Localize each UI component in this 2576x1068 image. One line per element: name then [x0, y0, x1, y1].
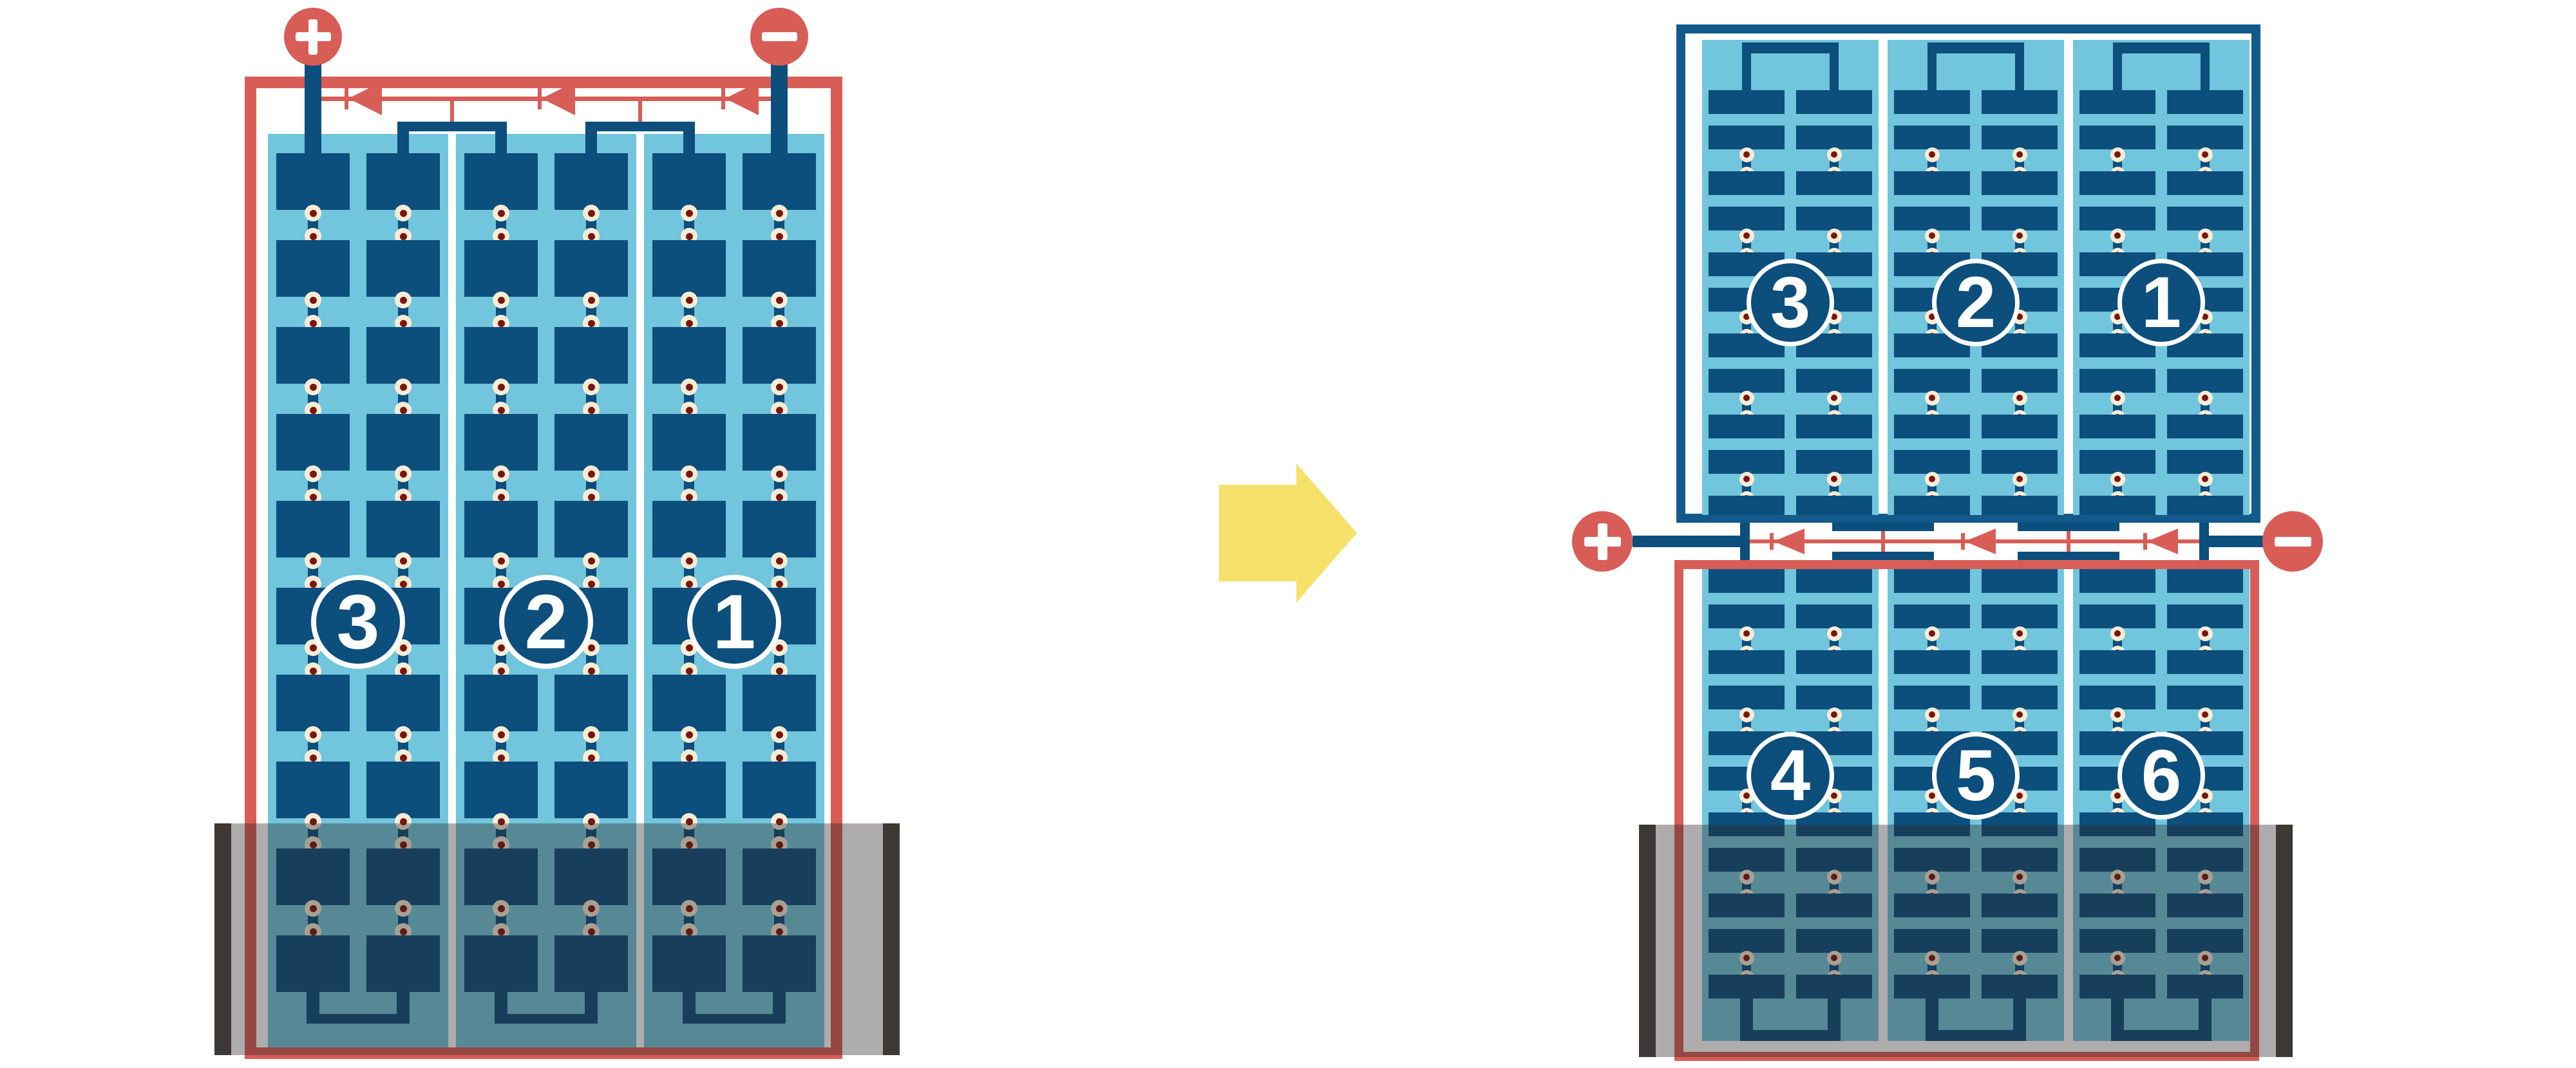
junction-bus-bar: [2199, 523, 2209, 560]
string-number-badge: 4: [1747, 732, 1834, 820]
solar-cell: [1982, 369, 2058, 393]
solar-cell: [2167, 686, 2243, 709]
solder-joint-icon: [2012, 472, 2027, 487]
solar-cell: [2167, 415, 2243, 438]
solar-cell: [1709, 415, 1785, 438]
solar-cell: [1709, 450, 1785, 474]
solder-joint-core: [1929, 711, 1935, 718]
solar-cell: [2079, 650, 2155, 674]
solder-joint-core: [2202, 151, 2208, 158]
solder-joint-icon: [2012, 707, 2027, 722]
solder-joint-core: [1831, 711, 1837, 718]
solar-cell: [2079, 171, 2155, 195]
solar-cell: [1982, 415, 2058, 438]
solder-joint-icon: [2110, 391, 2125, 406]
solar-cell: [1982, 90, 2058, 114]
solar-cell: [2167, 171, 2243, 195]
solder-joint-icon: [2110, 229, 2125, 243]
solar-cell: [1709, 569, 1785, 593]
shade-edge-bar: [2276, 825, 2293, 1057]
solder-joint-icon: [1925, 707, 1940, 722]
solar-cell: [1709, 90, 1785, 114]
minus-icon: [2275, 537, 2311, 547]
solder-joint-core: [1743, 151, 1750, 158]
solder-joint-core: [2114, 792, 2121, 799]
solder-joint-core: [2016, 630, 2023, 637]
positive-terminal: [1572, 511, 1633, 572]
solar-cell: [1796, 496, 1872, 515]
solar-cell: [2167, 496, 2243, 515]
string-number-badge: 5: [1932, 732, 2020, 820]
solar-cell: [2167, 207, 2243, 230]
solder-joint-icon: [2198, 472, 2213, 487]
solder-joint-core: [2016, 395, 2023, 401]
solder-joint-icon: [2110, 626, 2125, 641]
solder-joint-icon: [2110, 707, 2125, 722]
solder-joint-core: [1929, 476, 1935, 482]
shade-overlay: [1639, 825, 2293, 1057]
solder-joint-core: [1743, 792, 1750, 799]
solar-cell: [1894, 171, 1970, 195]
string-number-badge: 3: [1747, 259, 1834, 346]
solar-cell: [1982, 207, 2058, 230]
terminal-wire: [2209, 536, 2264, 547]
solar-cell: [1709, 126, 1785, 149]
solder-joint-core: [1831, 476, 1837, 482]
solar-cell: [1982, 126, 2058, 149]
solder-joint-core: [2114, 711, 2121, 718]
solder-joint-core: [1743, 630, 1750, 637]
string-jumper-leg: [2015, 53, 2024, 91]
string-jumper-top: [1742, 42, 1839, 53]
terminal-wire: [1633, 536, 1740, 547]
solar-cell: [1982, 171, 2058, 195]
solar-cell: [1796, 90, 1872, 114]
diode-tap-tick: [2067, 531, 2070, 552]
solar-cell: [2079, 369, 2155, 393]
solder-joint-icon: [1739, 391, 1754, 406]
solder-joint-core: [1743, 476, 1750, 482]
solder-joint-icon: [1925, 626, 1940, 641]
bypass-diode-icon: [2147, 529, 2178, 554]
solder-joint-core: [1831, 232, 1837, 239]
negative-terminal: [2262, 511, 2323, 572]
solder-joint-icon: [2110, 472, 2125, 487]
diode-tap-tick: [1881, 531, 1885, 552]
solar-cell: [2079, 604, 2155, 628]
solder-joint-core: [1743, 232, 1750, 239]
solder-joint-icon: [1827, 391, 1842, 406]
string-jumper-leg: [1927, 53, 1937, 91]
string-jumper-leg: [2113, 53, 2122, 91]
solder-joint-icon: [1827, 472, 1842, 487]
string-number-badge: 1: [2117, 259, 2205, 346]
string-jumper-leg: [2201, 53, 2210, 91]
solar-cell: [1796, 126, 1872, 149]
solar-cell: [2079, 415, 2155, 438]
string-number-badge: 6: [2117, 732, 2205, 820]
solar-cell: [1709, 171, 1785, 195]
solder-joint-core: [2114, 395, 2121, 401]
solder-joint-core: [1831, 792, 1837, 799]
solar-cell: [2167, 126, 2243, 149]
solder-joint-icon: [1827, 626, 1842, 641]
solar-cell: [1894, 686, 1970, 709]
solder-joint-icon: [1739, 229, 1754, 243]
solar-cell: [1709, 650, 1785, 674]
solar-cell: [1796, 415, 1872, 438]
junction-tab-lower: [1832, 552, 1934, 560]
bypass-diode-icon: [1965, 529, 1996, 554]
solder-joint-core: [1929, 630, 1935, 637]
solar-cell: [2079, 450, 2155, 474]
solar-cell: [2167, 369, 2243, 393]
solar-cell: [1894, 569, 1970, 593]
solder-joint-core: [1743, 711, 1750, 718]
bypass-diode-icon: [1774, 529, 1804, 554]
solder-joint-core: [1831, 395, 1837, 401]
solar-cell: [1796, 450, 1872, 474]
solar-cell: [1894, 604, 1970, 628]
solder-joint-core: [1929, 792, 1935, 799]
solar-cell: [1894, 369, 1970, 393]
solar-cell: [1709, 496, 1785, 515]
solar-cell: [2079, 126, 2155, 149]
solder-joint-core: [2016, 232, 2023, 239]
solar-cell: [2167, 569, 2243, 593]
solder-joint-icon: [2198, 626, 2213, 641]
solar-cell: [1796, 650, 1872, 674]
solder-joint-core: [1929, 151, 1935, 158]
solar-cell: [1894, 496, 1970, 515]
solder-joint-icon: [2198, 229, 2213, 243]
solar-cell: [2079, 496, 2155, 515]
solder-joint-icon: [1925, 391, 1940, 406]
string-number-badge: 2: [1932, 259, 2020, 346]
solar-cell: [2167, 90, 2243, 114]
solder-joint-icon: [2110, 147, 2125, 162]
solder-joint-icon: [1827, 707, 1842, 722]
solder-joint-icon: [2198, 707, 2213, 722]
solder-joint-core: [2202, 476, 2208, 482]
solder-joint-icon: [1739, 147, 1754, 162]
solder-joint-core: [1831, 630, 1837, 637]
solder-joint-icon: [1925, 472, 1940, 487]
solar-cell: [1894, 415, 1970, 438]
string-jumper-top: [1927, 42, 2024, 53]
solar-cell: [1796, 686, 1872, 709]
solar-cell: [2079, 207, 2155, 230]
solar-cell: [2167, 650, 2243, 674]
string-jumper-leg: [1742, 53, 1751, 91]
solder-joint-core: [2114, 630, 2121, 637]
solar-cell: [2167, 450, 2243, 474]
solder-joint-core: [2114, 476, 2121, 482]
diagram-canvas: 321 321456: [0, 0, 2576, 1068]
solar-cell: [1982, 450, 2058, 474]
solar-cell: [1709, 604, 1785, 628]
solar-cell: [1796, 369, 1872, 393]
solar-cell: [1709, 207, 1785, 230]
junction-tab-lower: [2018, 552, 2119, 560]
string-jumper-top: [2113, 42, 2210, 53]
solder-joint-core: [2016, 792, 2023, 799]
solar-cell: [1709, 686, 1785, 709]
solar-cell: [2079, 686, 2155, 709]
solar-cell: [1982, 686, 2058, 709]
solder-joint-core: [2202, 630, 2208, 637]
solar-cell: [1796, 604, 1872, 628]
solder-joint-icon: [2012, 147, 2027, 162]
solar-cell: [1982, 650, 2058, 674]
solder-joint-icon: [1925, 147, 1940, 162]
solder-joint-core: [1929, 395, 1935, 401]
solder-joint-core: [1743, 395, 1750, 401]
solar-cell: [1982, 604, 2058, 628]
solder-joint-core: [2114, 232, 2121, 239]
solder-joint-icon: [2198, 391, 2213, 406]
solder-joint-core: [2202, 232, 2208, 239]
solder-joint-core: [1831, 151, 1837, 158]
solar-cell: [2079, 569, 2155, 593]
solder-joint-core: [2016, 711, 2023, 718]
solar-cell: [1894, 450, 1970, 474]
solar-cell: [1894, 650, 1970, 674]
solar-cell: [2079, 90, 2155, 114]
plus-icon: [1598, 523, 1607, 560]
solar-cell: [1894, 90, 1970, 114]
half-cut-module-diagram: 321456: [0, 0, 2576, 1068]
solar-cell: [1796, 569, 1872, 593]
solder-joint-core: [2114, 151, 2121, 158]
solar-cell: [1894, 207, 1970, 230]
solder-joint-icon: [2012, 626, 2027, 641]
solar-cell: [1796, 171, 1872, 195]
string-jumper-leg: [1830, 53, 1839, 91]
solar-cell: [1982, 496, 2058, 515]
solder-joint-icon: [2012, 229, 2027, 243]
solder-joint-core: [1929, 232, 1935, 239]
solder-joint-core: [2016, 476, 2023, 482]
solder-joint-icon: [2198, 147, 2213, 162]
junction-tab-upper: [2018, 523, 2119, 531]
solder-joint-icon: [2012, 391, 2027, 406]
solder-joint-icon: [1739, 707, 1754, 722]
solder-joint-icon: [1925, 229, 1940, 243]
solar-cell: [1894, 126, 1970, 149]
solder-joint-icon: [1739, 626, 1754, 641]
solder-joint-core: [2016, 151, 2023, 158]
solder-joint-core: [2202, 792, 2208, 799]
solder-joint-icon: [1827, 229, 1842, 243]
junction-bus-bar: [1740, 523, 1750, 560]
solder-joint-icon: [1739, 472, 1754, 487]
solar-cell: [1709, 369, 1785, 393]
solar-cell: [2167, 604, 2243, 628]
solar-cell: [1796, 207, 1872, 230]
junction-tab-upper: [1832, 523, 1934, 531]
solder-joint-core: [2202, 395, 2208, 401]
solder-joint-icon: [1827, 147, 1842, 162]
shade-edge-bar: [1639, 825, 1656, 1057]
solar-cell: [1982, 569, 2058, 593]
solder-joint-core: [2202, 711, 2208, 718]
